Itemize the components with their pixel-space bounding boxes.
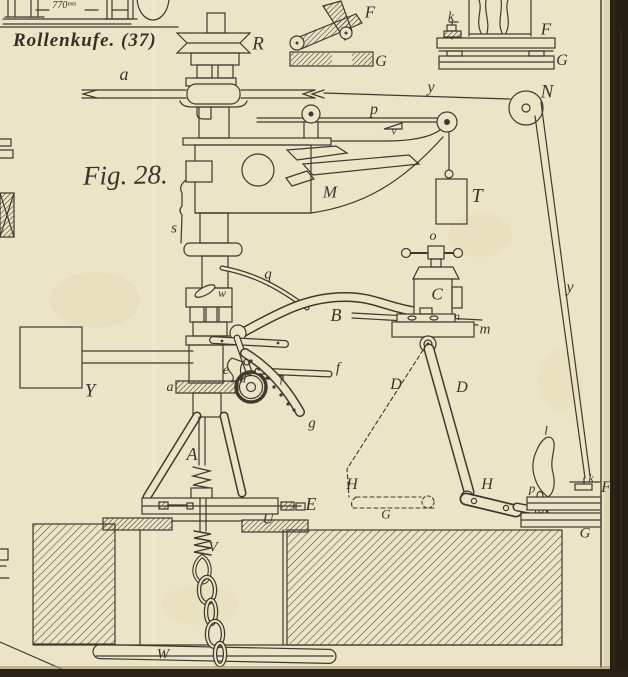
box-y xyxy=(20,327,193,388)
inset-detail-upper xyxy=(290,1,373,66)
pulley-n-rope xyxy=(509,91,590,478)
engraving-art xyxy=(0,0,628,677)
vise-c xyxy=(392,246,474,352)
arm-pulleys xyxy=(257,105,457,138)
roller-spindle xyxy=(177,13,250,86)
column-stack xyxy=(184,213,242,383)
figure-caption: Rollenkufe. (37) xyxy=(13,30,157,52)
scanned-engraving-page: Rollenkufe. (37) Fig. 28. 770ᵐᵐRayNpvMsT… xyxy=(0,0,628,677)
screw-v-chain xyxy=(194,499,225,665)
machine-figure xyxy=(0,13,601,677)
counterweight-t xyxy=(436,132,467,224)
stay-d xyxy=(347,349,469,508)
shaft-hub xyxy=(187,84,240,104)
inset-detail-top-right xyxy=(437,0,555,69)
machine-head xyxy=(180,107,443,243)
figure-number: Fig. 28. xyxy=(83,159,168,191)
adjacent-figure-left-edge xyxy=(0,139,14,578)
ratchet-mechanism xyxy=(176,325,329,417)
foundation-pit xyxy=(0,524,562,677)
pedal-linkage xyxy=(461,437,601,527)
adjacent-figure-remnant xyxy=(0,0,178,27)
shaft-a xyxy=(82,90,510,99)
trip-rod-s xyxy=(180,180,186,243)
